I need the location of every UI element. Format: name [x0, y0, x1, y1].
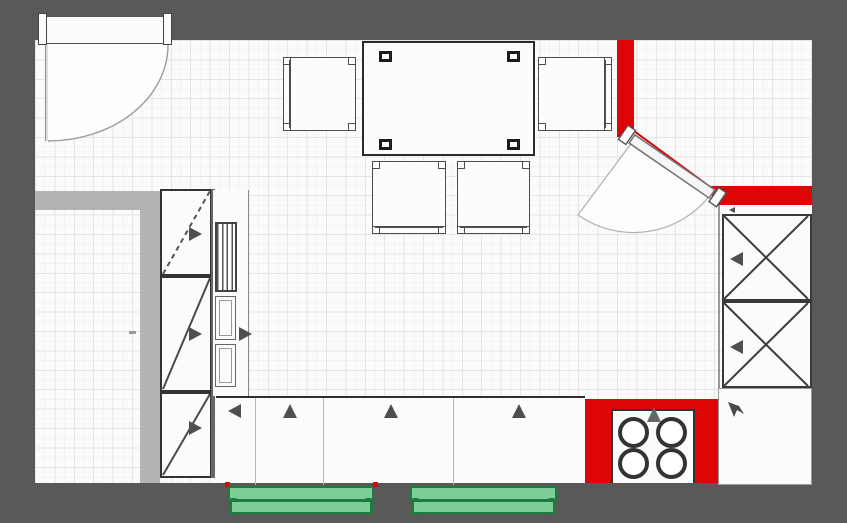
tall-cabinet-left-3[interactable] [160, 392, 212, 478]
vent-unit[interactable] [215, 222, 237, 292]
chair-backrest [289, 60, 291, 128]
burner-bottom-right [656, 448, 687, 479]
burner-top-right [656, 417, 687, 448]
x-cabinet-right-2[interactable] [722, 301, 812, 388]
cabinet-divider [255, 398, 256, 485]
chair-left[interactable] [283, 57, 356, 131]
table-leg [507, 51, 520, 62]
base-cabinet-run[interactable] [216, 396, 585, 483]
x-cabinet-right-1[interactable] [722, 214, 812, 301]
chair-bottom-2[interactable] [457, 161, 530, 234]
chair-backrest [604, 60, 606, 128]
door-top-jamb-left [38, 13, 47, 45]
drawer-box-2[interactable] [215, 344, 236, 387]
door-top-frame[interactable] [38, 16, 172, 44]
bench-1-seat[interactable] [230, 500, 372, 514]
snap-dot [225, 482, 230, 487]
door-top-jamb-right [163, 13, 172, 45]
tall-cabinet-left-1[interactable] [160, 189, 212, 276]
chair-bottom-1[interactable] [372, 161, 446, 234]
chair-right[interactable] [538, 57, 612, 131]
wall-tick-mark [129, 331, 136, 334]
cabinet-divider [323, 398, 324, 485]
burner-top-left [618, 417, 649, 448]
bench-2-seat[interactable] [412, 500, 555, 514]
door-top-panel [45, 45, 49, 141]
chair-backrest [460, 226, 527, 228]
bench-1-back[interactable] [228, 486, 374, 501]
tall-cabinet-left-2[interactable] [160, 276, 212, 392]
drawer-box-1[interactable] [215, 296, 236, 340]
table-leg [379, 139, 392, 150]
burner-bottom-left [618, 448, 649, 479]
table-leg [379, 51, 392, 62]
chair-backrest [375, 226, 443, 228]
snap-dot [373, 482, 378, 487]
wall-gray-vertical[interactable] [140, 191, 160, 483]
cabinet-divider [453, 398, 454, 485]
table-leg [507, 139, 520, 150]
floor-plan-canvas [0, 0, 847, 523]
bench-2-back[interactable] [410, 486, 557, 501]
cabinet-right-lower[interactable] [718, 388, 812, 485]
